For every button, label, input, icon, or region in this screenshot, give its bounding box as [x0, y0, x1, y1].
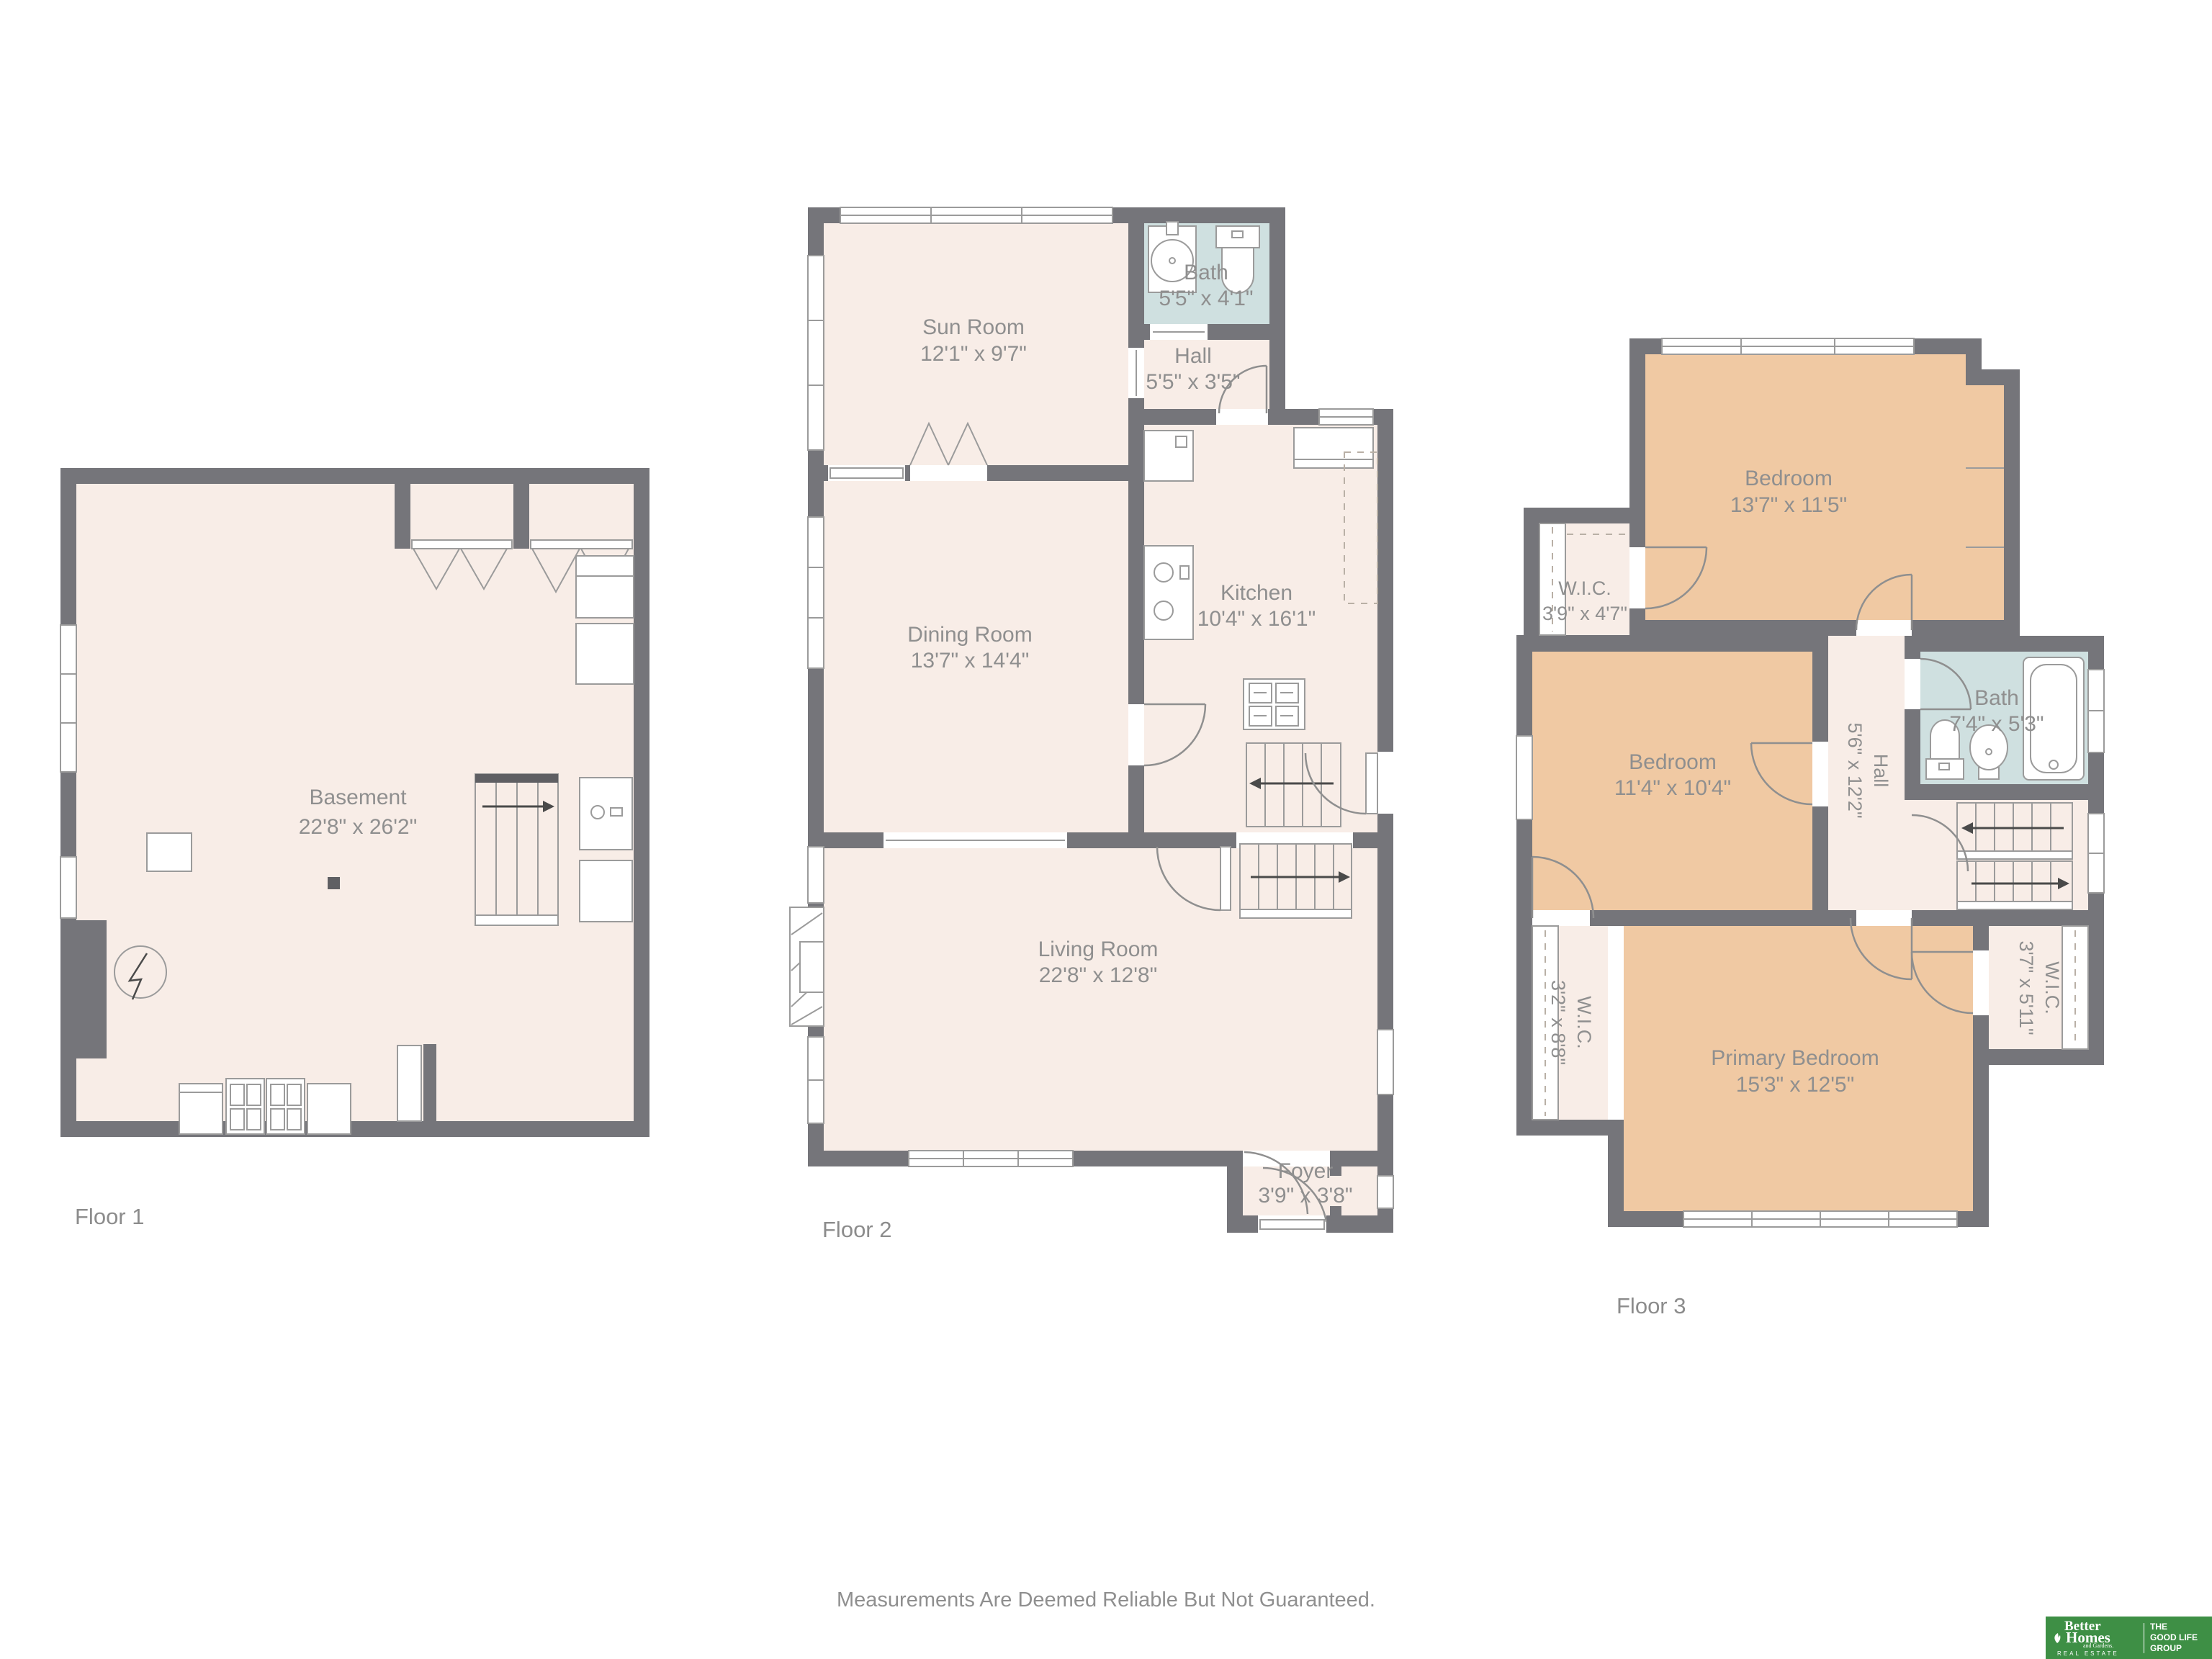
- group-name-block: THE GOOD LIFE GROUP: [2150, 1622, 2198, 1654]
- chimney-block: [60, 920, 107, 1058]
- floorplan-canvas: Basement 22'8" x 26'2": [0, 0, 2212, 1659]
- disclaimer-text: Measurements Are Deemed Reliable But Not…: [0, 1588, 2212, 1612]
- svg-text:3'7" x 5'11": 3'7" x 5'11": [2015, 940, 2037, 1035]
- svg-text:Kitchen: Kitchen: [1220, 581, 1292, 605]
- svg-text:3'2" x 8'8": 3'2" x 8'8": [1547, 980, 1569, 1065]
- laundry-appliances: [179, 1079, 351, 1134]
- svg-text:5'5" x 3'5": 5'5" x 3'5": [1146, 370, 1240, 394]
- svg-text:15'3" x 12'5": 15'3" x 12'5": [1736, 1073, 1855, 1097]
- svg-text:3'9" x 3'8": 3'9" x 3'8": [1258, 1184, 1352, 1208]
- svg-text:Living Room: Living Room: [1038, 938, 1159, 961]
- svg-text:Bedroom: Bedroom: [1745, 467, 1833, 490]
- brand-subline: and Gardens.: [2083, 1643, 2141, 1649]
- svg-text:Bath: Bath: [1184, 261, 1228, 284]
- svg-text:Primary Bedroom: Primary Bedroom: [1711, 1046, 1879, 1070]
- brokerage-logo: Better Homes and Gardens. REAL ESTATE TH…: [2046, 1617, 2212, 1659]
- svg-text:22'8" x 12'8": 22'8" x 12'8": [1039, 963, 1158, 987]
- svg-text:Dining Room: Dining Room: [907, 623, 1032, 647]
- hall-3-floor: [1828, 636, 1912, 910]
- svg-text:5'6" x 12'2": 5'6" x 12'2": [1844, 722, 1866, 818]
- range-symbol: [1244, 679, 1305, 729]
- svg-text:11'4" x 10'4": 11'4" x 10'4": [1614, 776, 1731, 800]
- svg-text:Hall: Hall: [1870, 754, 1892, 788]
- group-line-2: GOOD LIFE: [2150, 1632, 2198, 1643]
- room-name: Basement: [309, 786, 407, 809]
- svg-text:7'4" x 5'3": 7'4" x 5'3": [1949, 712, 2044, 736]
- floor-3-plan: Bedroom 13'7" x 11'5" W.I.C. 3'9" x 4'7"…: [1511, 338, 2111, 1227]
- logo-divider: [2144, 1623, 2144, 1653]
- floor-1-windows: [60, 625, 76, 918]
- floor-1-label: Floor 1: [75, 1204, 144, 1230]
- svg-text:Bedroom: Bedroom: [1629, 750, 1717, 774]
- floor-1-plan: Basement 22'8" x 26'2": [60, 468, 649, 1137]
- fireplace-symbol: [790, 907, 824, 1026]
- svg-text:5'5" x 4'1": 5'5" x 4'1": [1159, 287, 1253, 310]
- floor-3-stairs: [1957, 803, 2072, 909]
- floor-2-label: Floor 2: [822, 1217, 891, 1243]
- bedroom-1-closet: [1966, 385, 2004, 620]
- utility-sink-symbol: [580, 778, 632, 850]
- svg-text:W.I.C.: W.I.C.: [1558, 577, 1611, 599]
- svg-text:13'7" x 14'4": 13'7" x 14'4": [911, 649, 1030, 673]
- group-line-3: GROUP: [2150, 1643, 2198, 1654]
- group-line-1: THE: [2150, 1622, 2198, 1632]
- svg-text:Foyer: Foyer: [1278, 1159, 1334, 1183]
- bhg-brand-block: Better Homes and Gardens. REAL ESTATE: [2046, 1619, 2141, 1657]
- stove-symbol: [1144, 546, 1193, 639]
- svg-text:Hall: Hall: [1174, 344, 1212, 368]
- room-dims: 22'8" x 26'2": [299, 815, 418, 839]
- svg-text:13'7" x 11'5": 13'7" x 11'5": [1730, 493, 1847, 517]
- window-well: [147, 833, 192, 871]
- svg-text:W.I.C.: W.I.C.: [1573, 996, 1595, 1049]
- svg-text:10'4" x 16'1": 10'4" x 16'1": [1197, 607, 1316, 631]
- svg-text:W.I.C.: W.I.C.: [2041, 961, 2063, 1015]
- svg-text:3'9" x 4'7": 3'9" x 4'7": [1542, 603, 1627, 624]
- svg-text:Bath: Bath: [1974, 686, 2019, 710]
- floor-3-label: Floor 3: [1617, 1293, 1686, 1319]
- floor-2-plan: Sun Room 12'1" x 9'7" Bath 5'5" x 4'1" H…: [790, 207, 1409, 1233]
- svg-text:12'1" x 9'7": 12'1" x 9'7": [920, 342, 1027, 366]
- basement-stairs: [475, 774, 558, 925]
- brand-tagline: REAL ESTATE: [2057, 1651, 2141, 1657]
- svg-text:Sun Room: Sun Room: [922, 315, 1025, 339]
- support-post: [328, 877, 340, 889]
- bottom-partition-door: [397, 1046, 421, 1121]
